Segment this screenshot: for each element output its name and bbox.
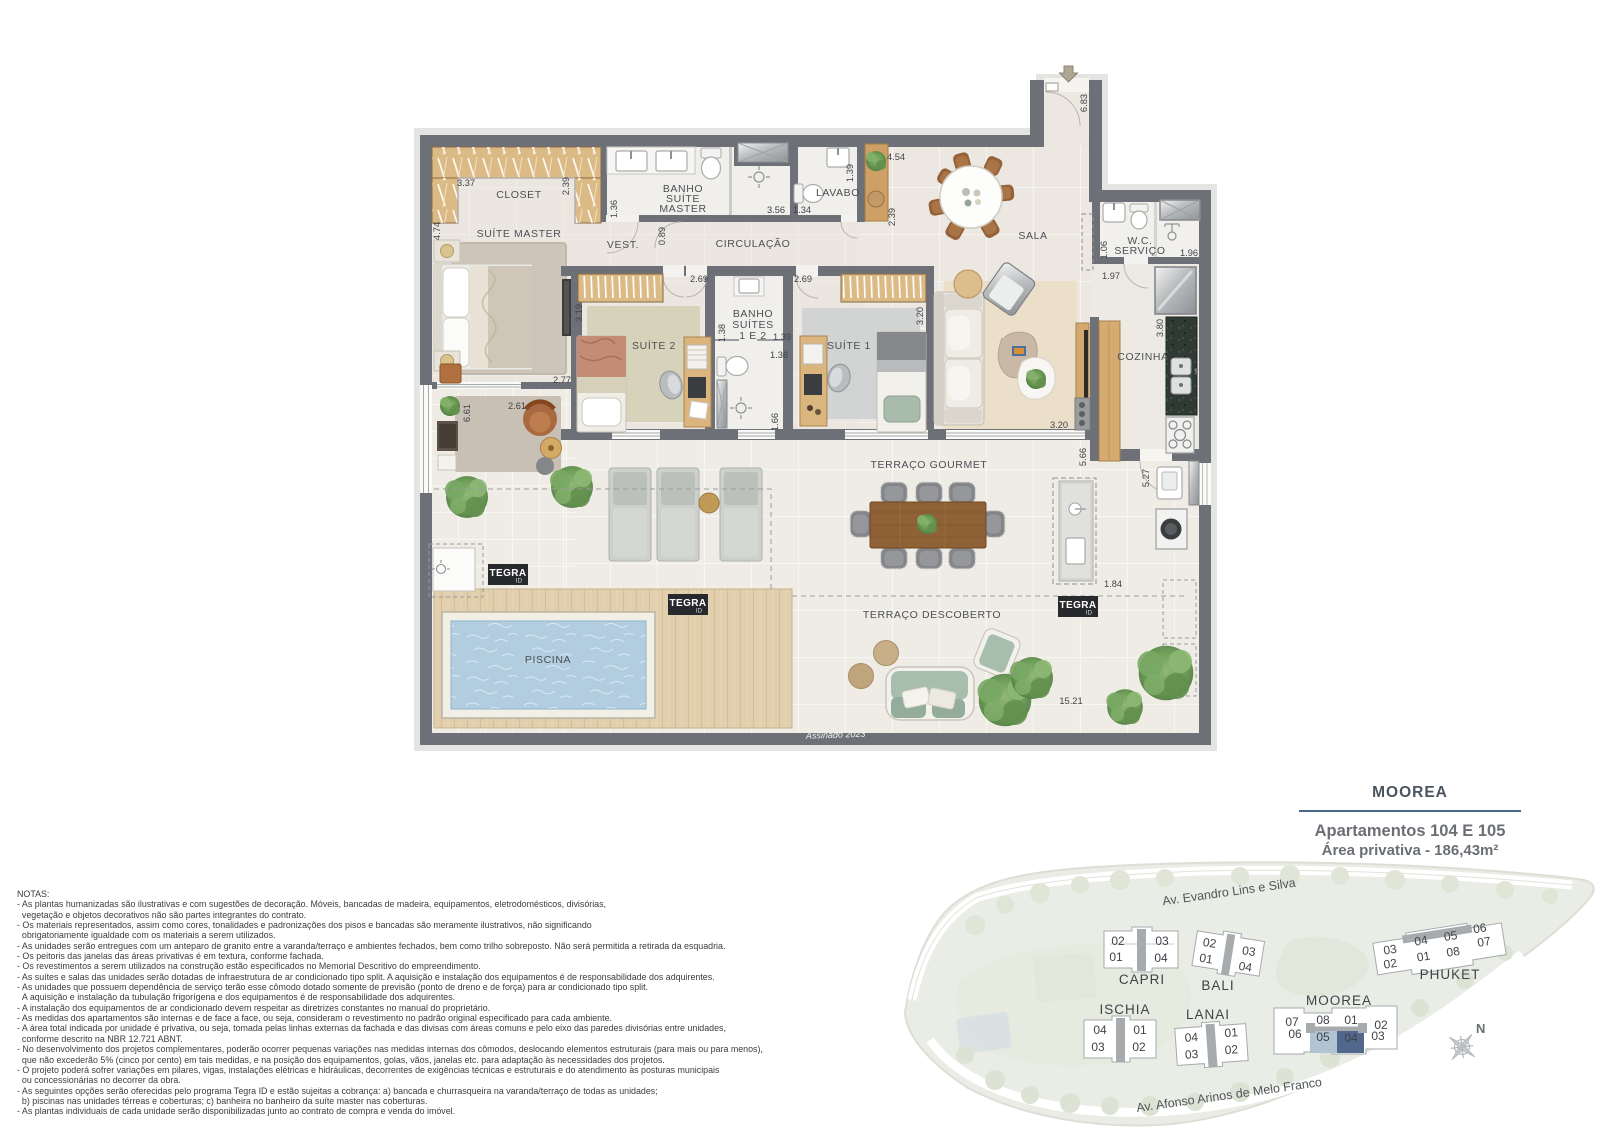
svg-text:1.84: 1.84 [1104, 579, 1122, 589]
svg-text:N: N [1476, 1021, 1485, 1036]
svg-text:03: 03 [1184, 1047, 1199, 1062]
svg-text:1.96: 1.96 [1180, 248, 1198, 258]
svg-text:04: 04 [1184, 1030, 1199, 1045]
svg-text:SUÍTE MASTER: SUÍTE MASTER [477, 227, 562, 240]
svg-text:1.66: 1.66 [770, 413, 780, 431]
svg-text:3.80: 3.80 [1155, 319, 1165, 337]
svg-text:4.54: 4.54 [887, 152, 905, 162]
svg-text:1.36: 1.36 [609, 200, 619, 218]
svg-text:ID: ID [1086, 610, 1093, 617]
svg-text:VEST.: VEST. [607, 239, 639, 251]
svg-text:01: 01 [1416, 948, 1432, 964]
svg-text:03: 03 [1155, 934, 1169, 948]
svg-text:CIRCULAÇÃO: CIRCULAÇÃO [716, 237, 791, 250]
svg-text:07: 07 [1476, 934, 1492, 950]
svg-text:3.20: 3.20 [915, 307, 925, 325]
svg-text:3.56: 3.56 [767, 205, 785, 215]
svg-text:2.39: 2.39 [561, 177, 571, 195]
svg-text:05: 05 [1443, 928, 1459, 944]
svg-text:CLOSET: CLOSET [496, 189, 542, 201]
svg-text:MASTER: MASTER [659, 203, 706, 215]
svg-text:1.38: 1.38 [717, 324, 727, 342]
svg-text:PHUKET: PHUKET [1420, 967, 1481, 982]
svg-text:ID: ID [696, 608, 703, 615]
svg-text:15.21: 15.21 [1059, 696, 1082, 706]
svg-text:PISCINA: PISCINA [525, 654, 571, 666]
svg-text:COZINHA: COZINHA [1117, 351, 1168, 363]
svg-text:3.20: 3.20 [1050, 420, 1068, 430]
svg-text:SUÍTE 1: SUÍTE 1 [827, 339, 871, 352]
svg-text:06: 06 [1288, 1027, 1302, 1041]
svg-text:ID: ID [516, 578, 523, 585]
svg-text:05: 05 [1316, 1030, 1330, 1044]
svg-text:01: 01 [1133, 1023, 1147, 1037]
svg-text:TERRAÇO GOURMET: TERRAÇO GOURMET [871, 459, 988, 471]
svg-text:5.27: 5.27 [1141, 469, 1151, 487]
svg-text:04: 04 [1413, 933, 1429, 949]
svg-text:BALI: BALI [1201, 978, 1234, 993]
svg-text:5.66: 5.66 [1078, 448, 1088, 466]
svg-text:1.06: 1.06 [1099, 241, 1109, 259]
svg-text:0.89: 0.89 [657, 227, 667, 245]
svg-text:2.69: 2.69 [794, 274, 812, 284]
svg-text:04: 04 [1154, 951, 1168, 965]
svg-text:2.69: 2.69 [690, 274, 708, 284]
svg-text:LANAI: LANAI [1186, 1007, 1230, 1022]
svg-text:1.97: 1.97 [1102, 271, 1120, 281]
svg-text:02: 02 [1224, 1042, 1239, 1057]
svg-text:1.39: 1.39 [845, 164, 855, 182]
svg-text:TERRAÇO DESCOBERTO: TERRAÇO DESCOBERTO [863, 609, 1001, 621]
svg-text:6.61: 6.61 [462, 404, 472, 422]
svg-text:03: 03 [1241, 943, 1257, 959]
svg-text:3.37: 3.37 [457, 178, 475, 188]
svg-text:1.36: 1.36 [770, 350, 788, 360]
svg-text:08: 08 [1445, 944, 1461, 960]
svg-text:4.74: 4.74 [432, 222, 442, 240]
svg-text:SERVIÇO: SERVIÇO [1114, 245, 1165, 257]
svg-text:1.34: 1.34 [793, 205, 811, 215]
svg-text:2.61: 2.61 [508, 401, 526, 411]
svg-text:SALA: SALA [1018, 230, 1047, 242]
svg-text:03: 03 [1382, 942, 1398, 958]
svg-text:CAPRI: CAPRI [1119, 972, 1165, 987]
svg-text:2.77: 2.77 [553, 375, 571, 385]
svg-text:04: 04 [1238, 959, 1254, 975]
svg-text:1 E 2: 1 E 2 [739, 330, 767, 342]
svg-text:1.39: 1.39 [773, 332, 791, 342]
svg-text:MOOREA: MOOREA [1306, 993, 1372, 1008]
svg-text:6.83: 6.83 [1079, 94, 1089, 112]
svg-text:2.39: 2.39 [887, 208, 897, 226]
svg-text:3.19: 3.19 [574, 304, 584, 322]
svg-text:01: 01 [1344, 1013, 1358, 1027]
svg-text:02: 02 [1202, 935, 1218, 951]
svg-text:08: 08 [1316, 1013, 1330, 1027]
svg-text:LAVABO: LAVABO [816, 187, 860, 199]
svg-text:02: 02 [1383, 956, 1399, 972]
svg-text:03: 03 [1371, 1029, 1385, 1043]
svg-text:SUÍTE 2: SUÍTE 2 [632, 339, 676, 352]
svg-text:01: 01 [1224, 1025, 1239, 1040]
svg-text:02: 02 [1132, 1040, 1146, 1054]
svg-text:01: 01 [1198, 951, 1214, 967]
svg-text:04: 04 [1344, 1031, 1358, 1045]
svg-text:Assinado 2023: Assinado 2023 [805, 729, 866, 741]
